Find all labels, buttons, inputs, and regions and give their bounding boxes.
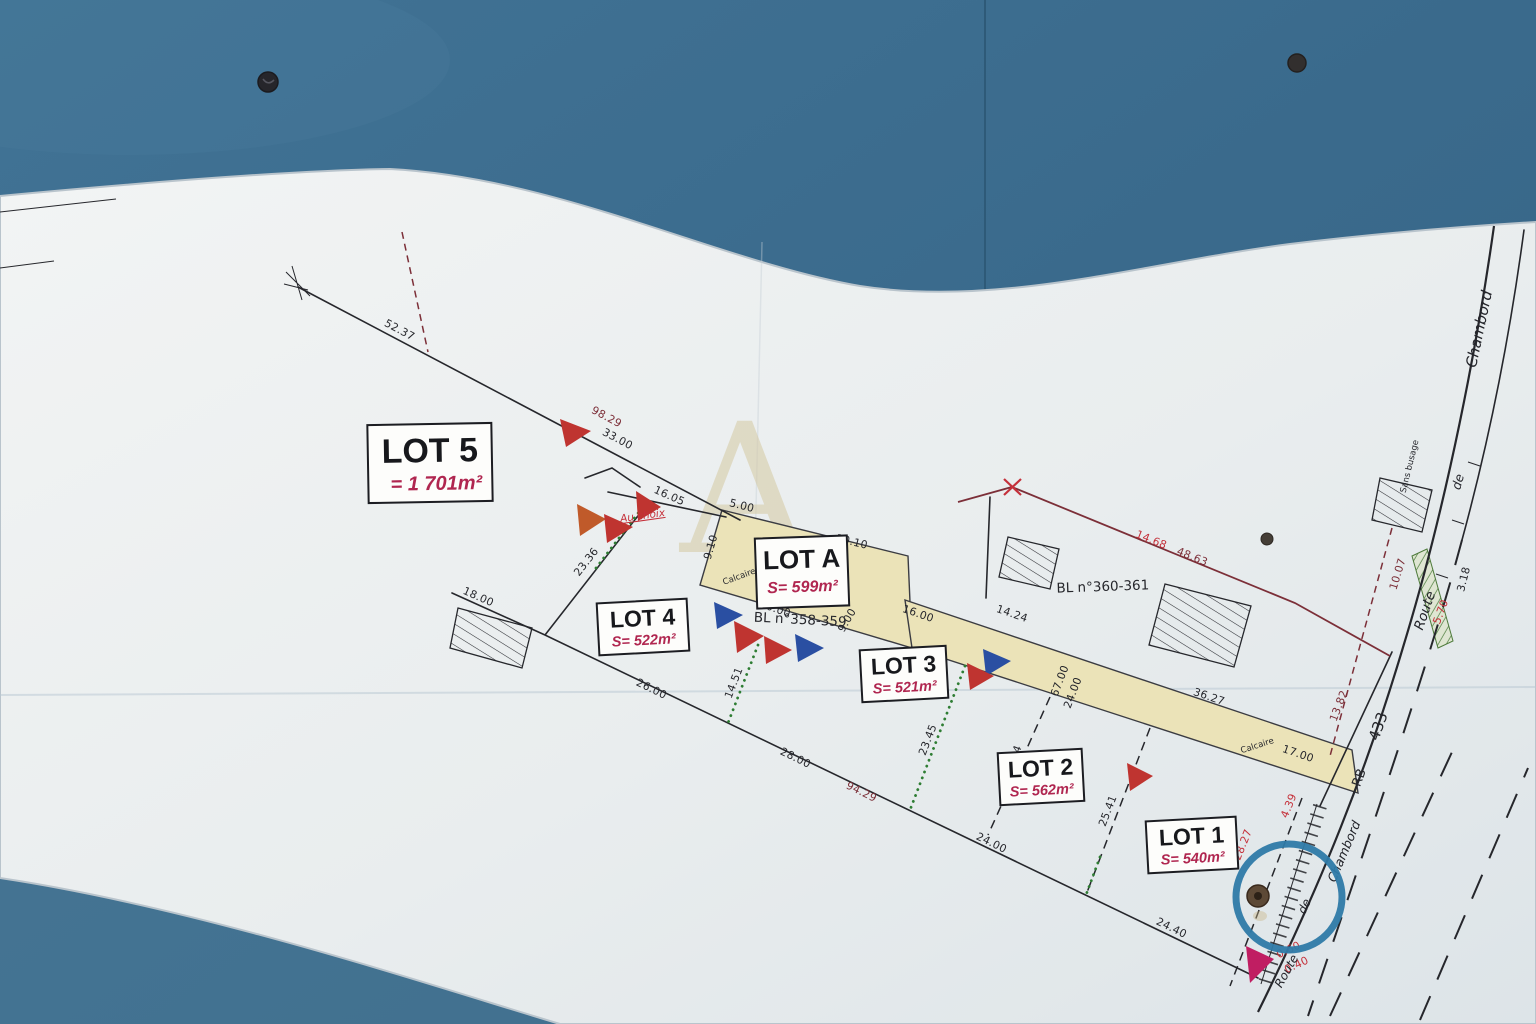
parcel-ref-360: BL n°360-361 <box>1056 577 1149 596</box>
lot-a-area: S= 599m² <box>767 578 839 597</box>
lot-5-area: = 1 701m² <box>390 472 483 496</box>
lot-3-label: LOT 3 S= 521m² <box>860 646 949 702</box>
lot-2-area: S= 562m² <box>1009 781 1075 800</box>
lot-4-area: S= 522m² <box>611 631 677 650</box>
lot-3-area: S= 521m² <box>872 678 938 697</box>
lot-1-area: S= 540m² <box>1160 849 1226 868</box>
lot-2-label: LOT 2 S= 562m² <box>998 749 1085 805</box>
lot-4-name: LOT 4 <box>609 603 676 632</box>
lot-2-name: LOT 2 <box>1007 753 1073 782</box>
lot-1-label: LOT 1 S= 540m² <box>1146 817 1239 874</box>
lot-1-name: LOT 1 <box>1158 821 1225 850</box>
lot-a-label: LOT A S= 599m² <box>755 535 849 608</box>
lot-5-name: LOT 5 <box>381 431 478 471</box>
site-plan-photo: A 52.3798.2933.0016.0523.3618.0026.0028.… <box>0 0 1536 1024</box>
pin-stain <box>1253 911 1267 921</box>
lot-3-name: LOT 3 <box>870 650 936 679</box>
lot-a-name: LOT A <box>763 543 841 576</box>
board-screw <box>1288 54 1306 72</box>
push-pin-center <box>1254 892 1262 900</box>
lot-5-label: LOT 5 = 1 701m² <box>367 423 492 503</box>
plan-canvas: A 52.3798.2933.0016.0523.3618.0026.0028.… <box>0 0 1536 1024</box>
push-pin-small <box>1261 533 1273 545</box>
lot-4-label: LOT 4 S= 522m² <box>597 599 690 656</box>
